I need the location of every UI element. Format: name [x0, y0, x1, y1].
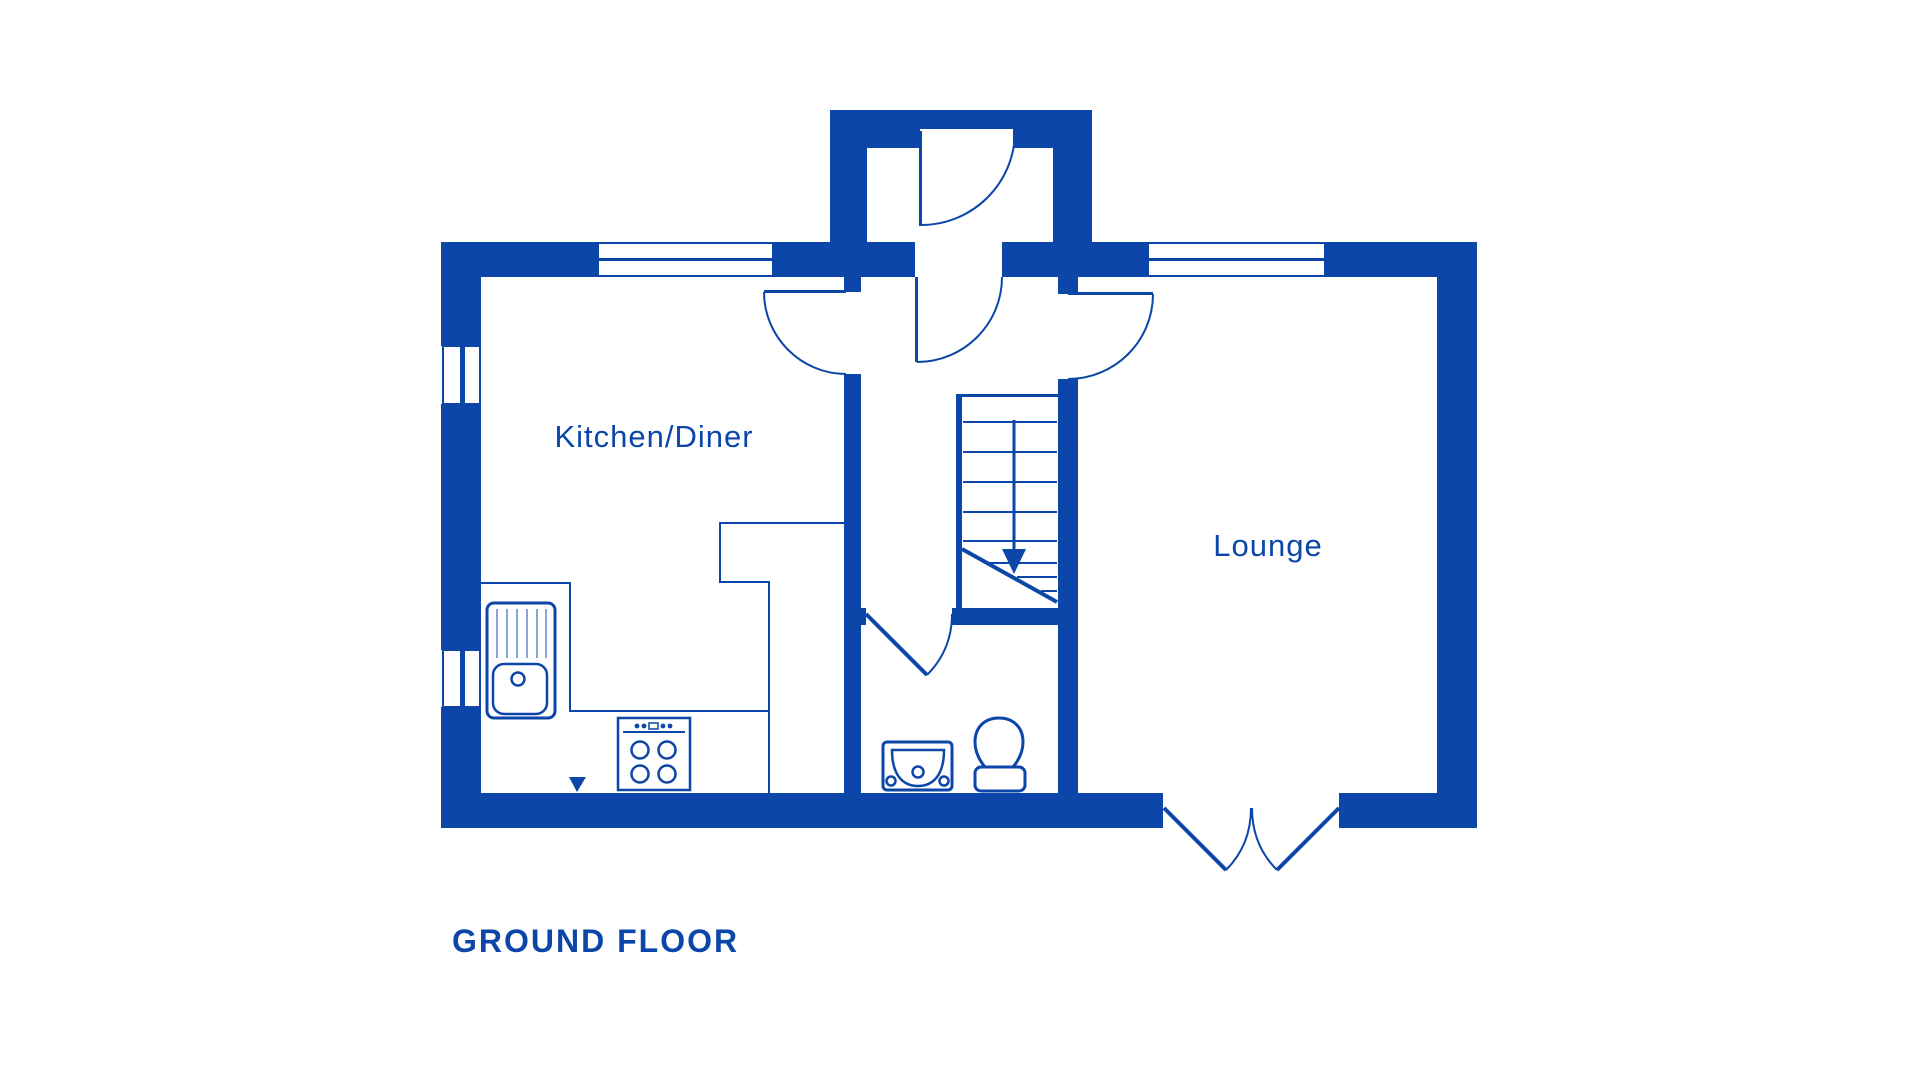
toilet-icon — [975, 718, 1025, 791]
kitchen-room-label: Kitchen/Diner — [554, 419, 753, 454]
floor-plan-drawing: Kitchen/Diner Lounge GROUND FLOOR — [0, 0, 1920, 1080]
hall-door-leaf — [915, 277, 918, 362]
hall-door-swing-arc — [917, 277, 1002, 362]
kitchen-door — [764, 290, 846, 374]
patio-double-doors — [1164, 808, 1339, 870]
basin-tap — [887, 777, 896, 786]
down-arrow-icon — [1002, 420, 1026, 574]
kitchen-door-swing-arc — [764, 292, 846, 374]
left-wall-segment — [441, 242, 481, 346]
bathroom-top-wall — [952, 608, 1058, 625]
kitchen-hall-wall — [844, 277, 861, 292]
toilet-bowl — [975, 718, 1023, 767]
front-door-leaf — [919, 131, 922, 226]
lounge-west-wall — [1058, 277, 1078, 294]
lounge-door-leaf — [1068, 292, 1153, 295]
lounge-door — [1068, 292, 1153, 379]
kitchen-hall-wall — [844, 374, 861, 793]
lounge-top-window — [1148, 243, 1325, 276]
right-wall — [1437, 242, 1477, 828]
patio-door-left-arc — [1226, 808, 1251, 870]
sink-drain — [512, 673, 525, 686]
floor-title: GROUND FLOOR — [452, 923, 739, 959]
kitchen-door-leaf — [764, 290, 846, 293]
lounge-door-swing-arc — [1068, 294, 1153, 379]
staircase — [956, 394, 1058, 610]
hall-inner-door — [915, 277, 1002, 362]
bottom-wall-segment — [1339, 793, 1477, 828]
basin-tap — [940, 777, 949, 786]
left-wall-segment — [441, 404, 481, 650]
sink-bowl — [493, 664, 547, 714]
kitchen-top-window — [598, 243, 773, 276]
hand-basin-icon — [883, 742, 952, 790]
kitchen-left-window-lower — [443, 650, 480, 707]
front-door-opening — [920, 129, 1013, 148]
lounge-room-label: Lounge — [1213, 528, 1322, 563]
stairs-top-edge — [956, 394, 1058, 397]
floor-plan-page: Kitchen/Diner Lounge GROUND FLOOR — [0, 0, 1920, 1080]
bathroom-door — [866, 614, 952, 675]
triangle-down-marker — [569, 777, 586, 792]
lounge-west-wall — [1058, 379, 1078, 793]
bathroom-wall-stub — [861, 608, 866, 625]
bottom-wall-segment — [441, 793, 1163, 828]
bathroom-door-swing-arc — [927, 614, 952, 675]
patio-door-right-leaf — [1277, 808, 1339, 870]
kitchen-left-window-upper — [443, 346, 480, 404]
patio-door-left-leaf — [1164, 808, 1226, 870]
top-wall-segment — [773, 242, 915, 277]
basin-drain — [913, 767, 924, 778]
kitchen-sink-with-drainer-icon — [487, 603, 555, 718]
windows — [443, 243, 1325, 707]
four-burner-stove-icon — [618, 718, 690, 790]
top-wall-segment — [1002, 242, 1148, 277]
stairs-side-wall — [956, 394, 962, 610]
toilet-cistern — [975, 767, 1025, 791]
bathroom-door-leaf — [866, 614, 927, 675]
patio-door-right-arc — [1252, 808, 1277, 870]
entrance-porch — [830, 110, 1092, 242]
